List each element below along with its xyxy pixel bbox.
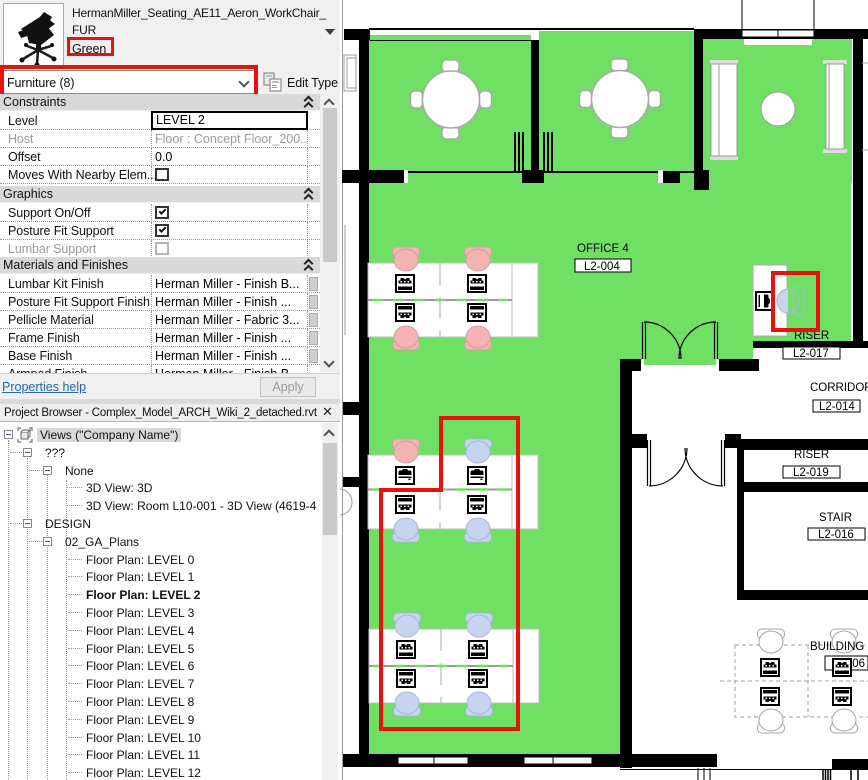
svg-text:BUILDING: BUILDING xyxy=(810,641,864,653)
svg-text:CORRIDOR: CORRIDOR xyxy=(810,382,868,394)
svg-text:L2-014: L2-014 xyxy=(819,401,855,413)
svg-text:L2-004: L2-004 xyxy=(584,261,620,273)
svg-text:RISER: RISER xyxy=(794,449,829,461)
svg-text:L2-016: L2-016 xyxy=(818,529,854,541)
svg-text:L2-017: L2-017 xyxy=(793,348,829,360)
svg-text:L2-019: L2-019 xyxy=(793,467,829,479)
svg-text:OFFICE 4: OFFICE 4 xyxy=(577,243,629,255)
svg-text:STAIR: STAIR xyxy=(819,512,852,524)
